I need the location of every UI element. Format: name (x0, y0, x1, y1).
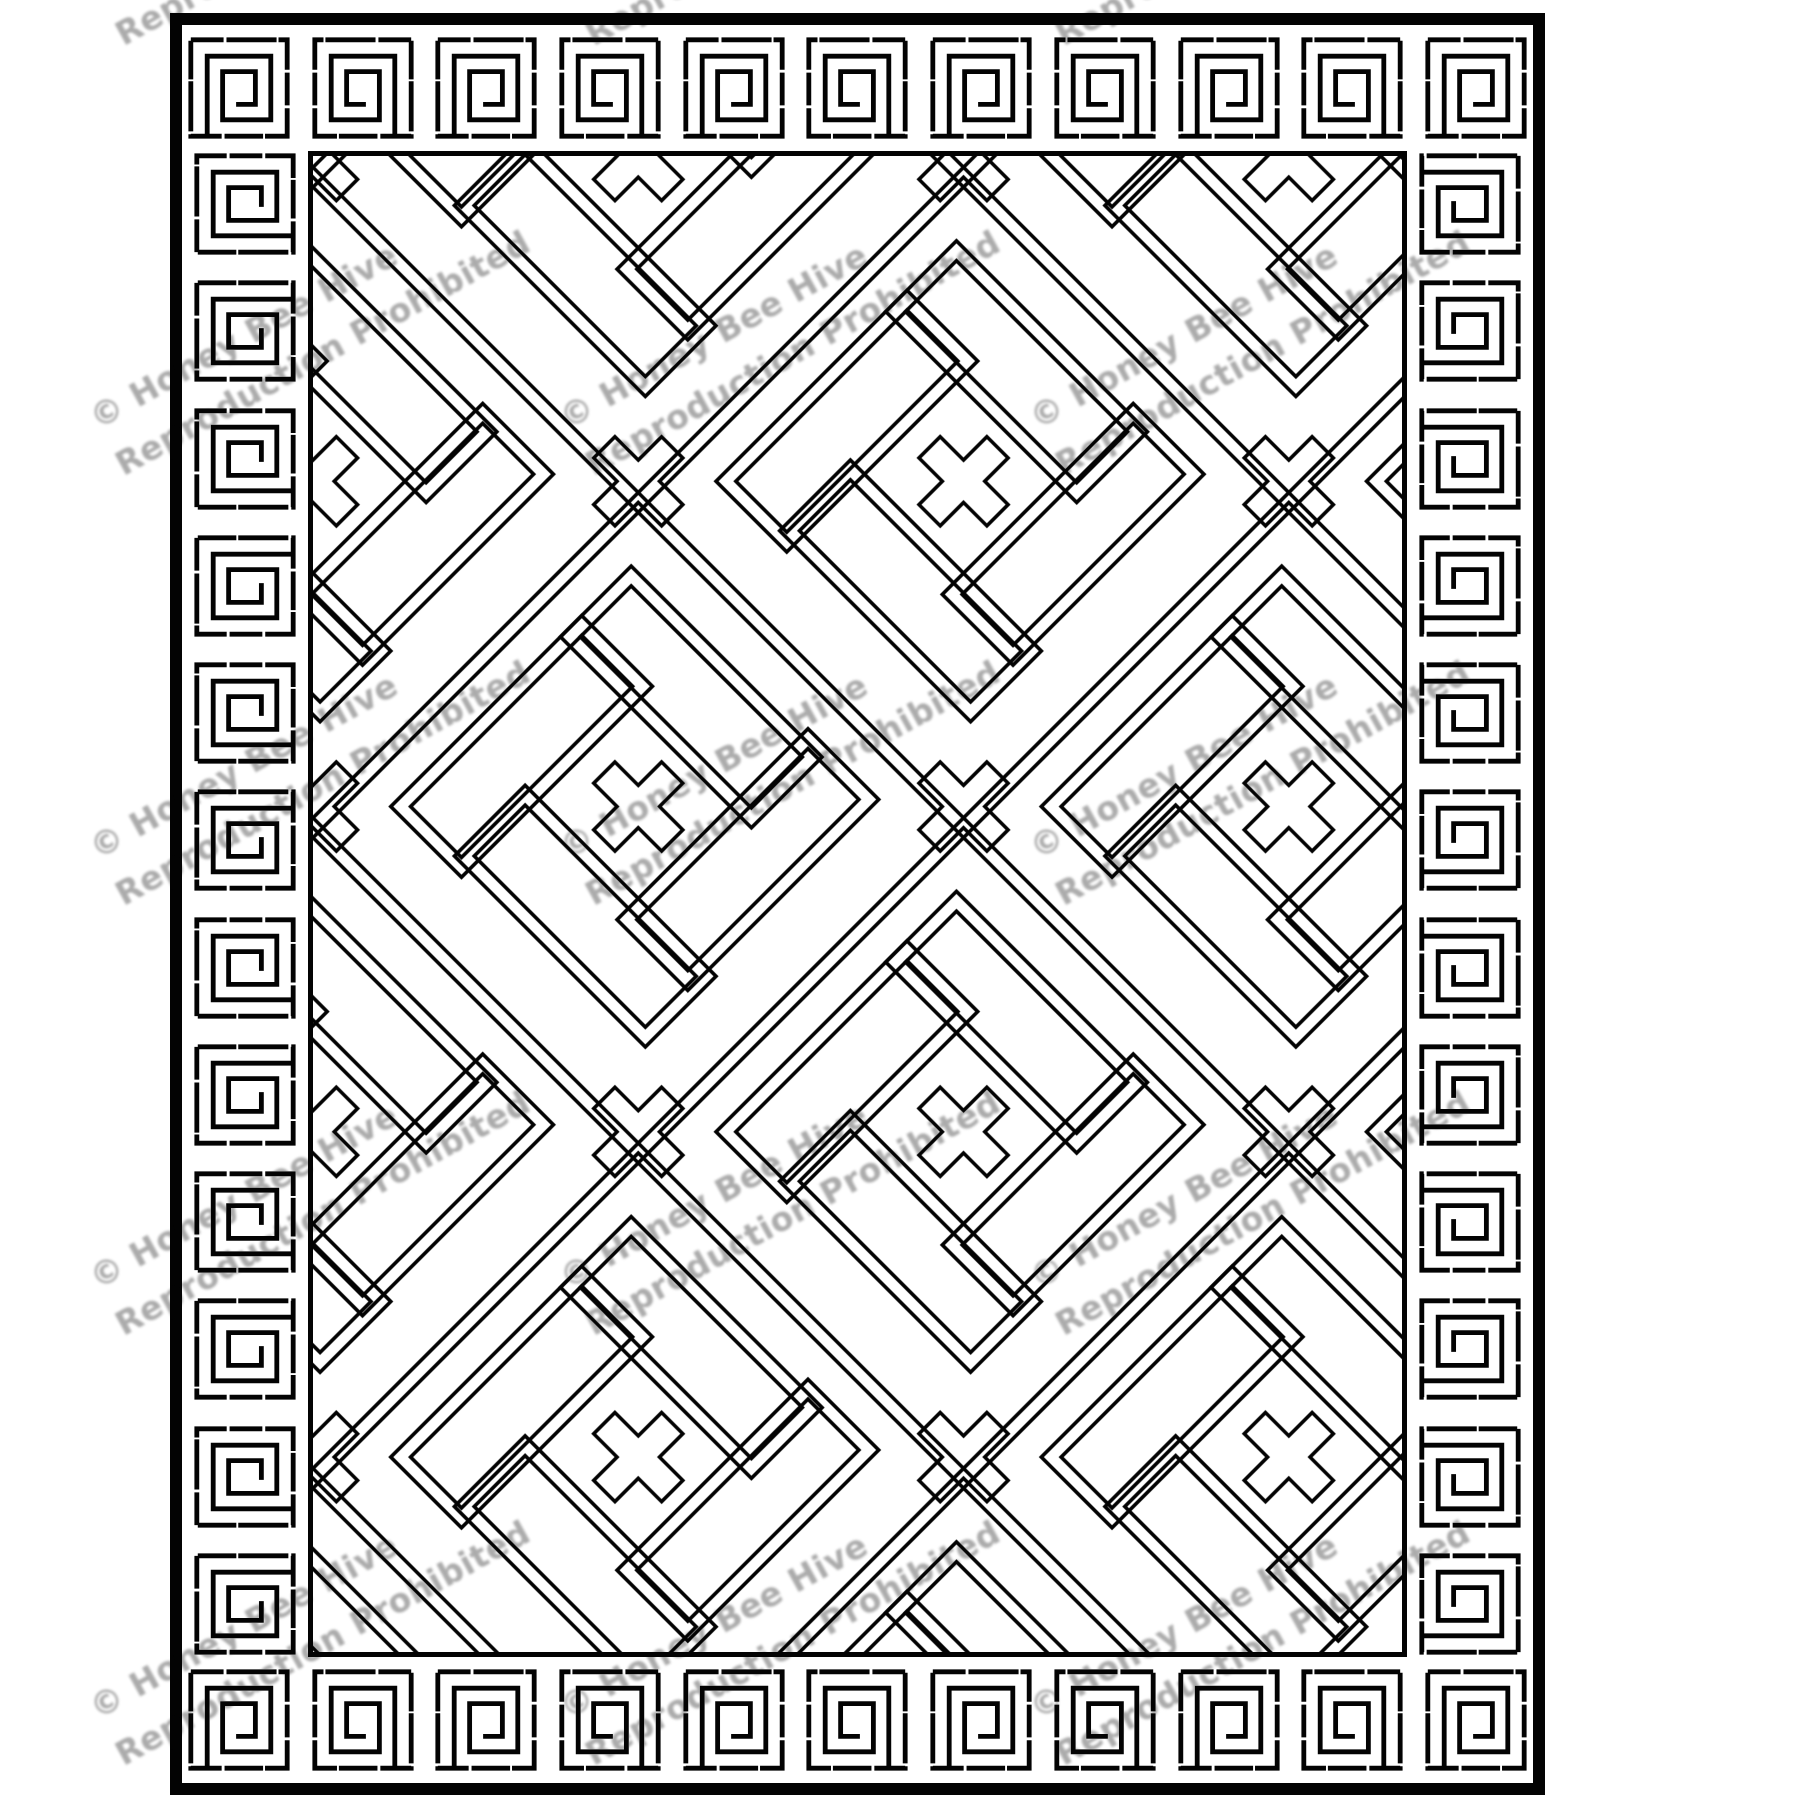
greek-key-motif (1417, 660, 1523, 766)
greek-key-motif (310, 35, 416, 141)
greek-key-motif (681, 35, 787, 141)
greek-key-motif (1299, 35, 1405, 141)
greek-key-motif (310, 1667, 416, 1773)
watermark-line1: © Honey Bee Hive (1019, 0, 1454, 13)
rug-pattern-drawing (170, 13, 1545, 1795)
greek-key-motif (1176, 35, 1282, 141)
greek-key-motif (1052, 1667, 1158, 1773)
greek-key-motif (557, 35, 663, 141)
pattern-sheet: © Honey Bee HiveReproduction Prohibited©… (0, 0, 1800, 1800)
greek-key-motif (1417, 406, 1523, 512)
greek-key-motif (557, 1667, 663, 1773)
greek-key-border-left (182, 151, 308, 1657)
greek-key-motif (186, 35, 292, 141)
greek-key-motif (1417, 1042, 1523, 1148)
greek-key-motif (928, 35, 1034, 141)
greek-key-motif (1176, 1667, 1282, 1773)
greek-key-border-right (1407, 151, 1533, 1657)
greek-key-motif (192, 278, 298, 384)
greek-key-motif (192, 1424, 298, 1530)
greek-key-border-top (184, 25, 1531, 151)
greek-key-motif (192, 660, 298, 766)
watermark-line1: © Honey Bee Hive (79, 0, 514, 13)
greek-key-motif (1417, 915, 1523, 1021)
lattice-field (308, 151, 1407, 1657)
greek-key-motif (1417, 1169, 1523, 1275)
greek-key-motif (1417, 151, 1523, 257)
greek-key-motif (1417, 787, 1523, 893)
greek-key-motif (192, 1551, 298, 1657)
greek-key-motif (1423, 1667, 1529, 1773)
greek-key-motif (192, 1296, 298, 1402)
greek-key-motif (433, 1667, 539, 1773)
greek-key-motif (1417, 533, 1523, 639)
greek-key-motif (186, 1667, 292, 1773)
watermark-line1: © Honey Bee Hive (549, 0, 984, 13)
greek-key-motif (928, 1667, 1034, 1773)
greek-key-motif (681, 1667, 787, 1773)
greek-key-motif (1423, 35, 1529, 141)
greek-key-motif (192, 1169, 298, 1275)
greek-key-motif (192, 406, 298, 512)
greek-key-motif (1417, 278, 1523, 384)
greek-key-motif (433, 35, 539, 141)
greek-key-motif (1417, 1296, 1523, 1402)
greek-key-border-bottom (184, 1657, 1531, 1783)
greek-key-motif (192, 1042, 298, 1148)
greek-key-motif (1417, 1424, 1523, 1530)
greek-key-motif (1052, 35, 1158, 141)
greek-key-motif (192, 151, 298, 257)
lattice-pattern-svg (313, 156, 1402, 1652)
greek-key-motif (1417, 1551, 1523, 1657)
greek-key-motif (804, 35, 910, 141)
greek-key-motif (192, 533, 298, 639)
greek-key-motif (804, 1667, 910, 1773)
greek-key-motif (1299, 1667, 1405, 1773)
greek-key-motif (192, 787, 298, 893)
greek-key-motif (192, 915, 298, 1021)
